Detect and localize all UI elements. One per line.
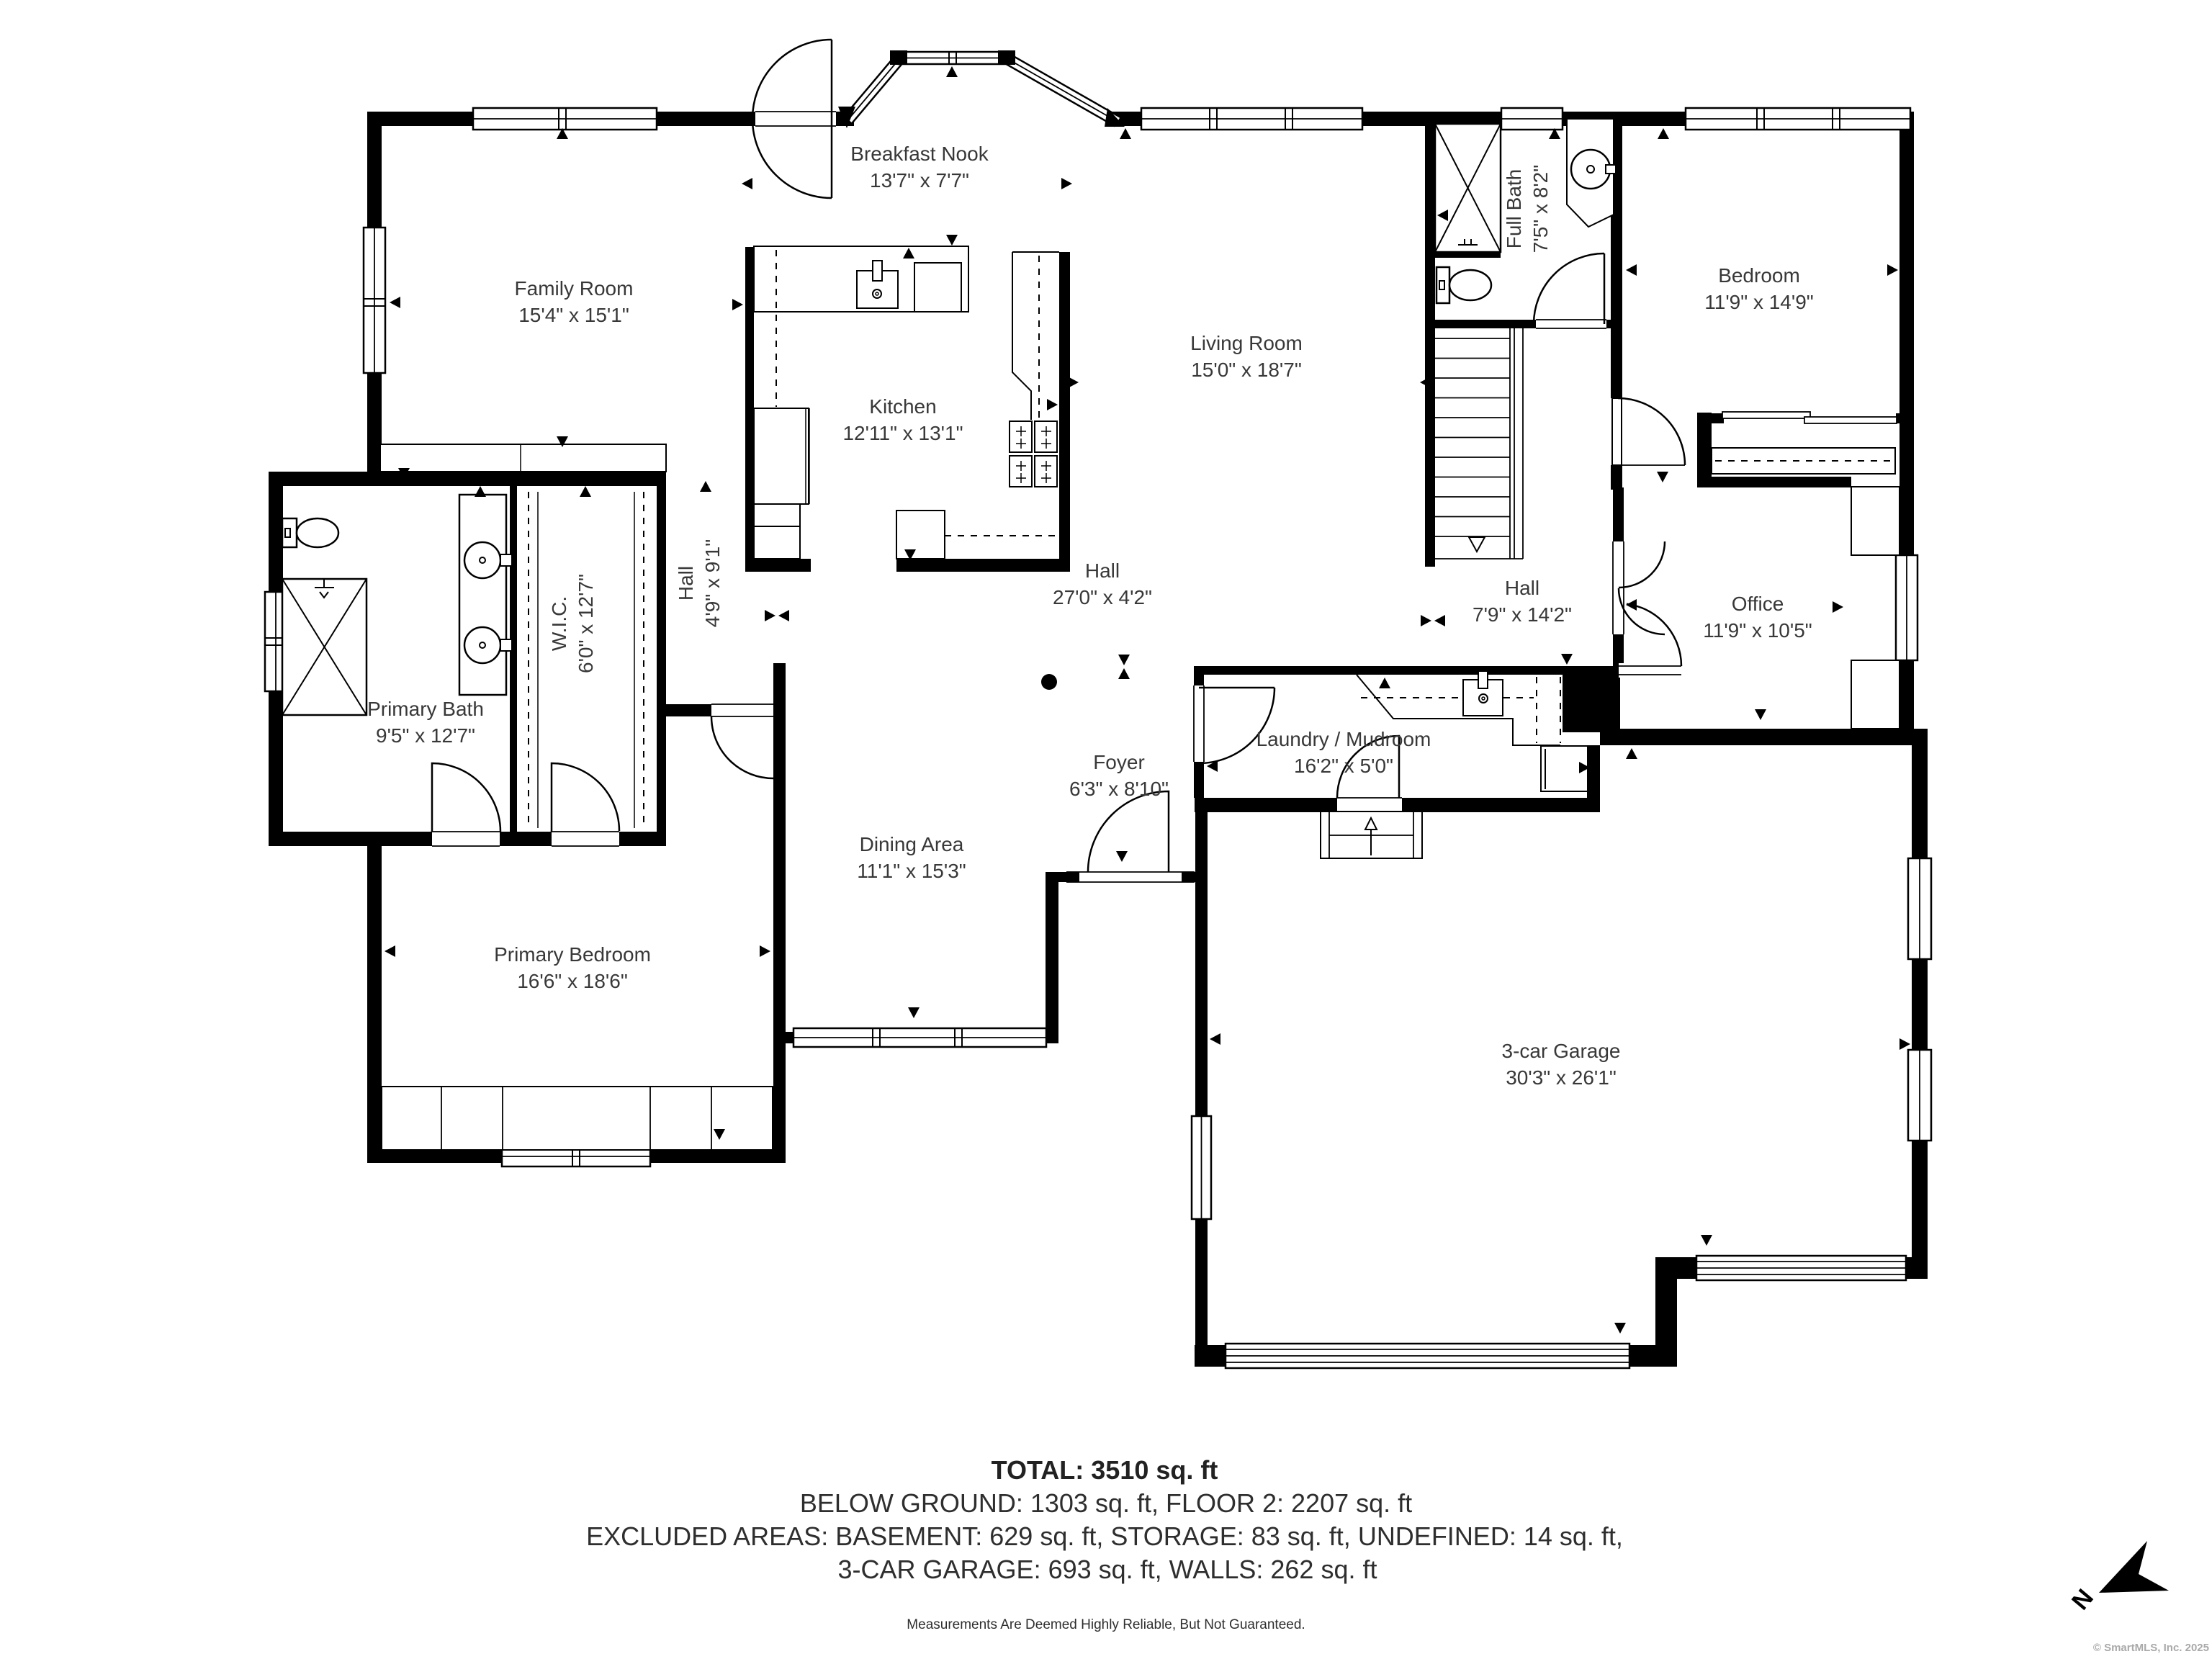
svg-text:Office: Office (1732, 593, 1784, 615)
svg-text:11'9" x 10'5": 11'9" x 10'5" (1703, 619, 1812, 642)
svg-text:13'7" x 7'7": 13'7" x 7'7" (870, 169, 969, 192)
svg-text:30'3" x 26'1": 30'3" x 26'1" (1506, 1066, 1617, 1089)
svg-text:4'9" x 9'1": 4'9" x 9'1" (701, 539, 724, 627)
svg-text:Primary Bedroom: Primary Bedroom (494, 943, 651, 966)
svg-text:15'4" x 15'1": 15'4" x 15'1" (518, 304, 629, 326)
svg-text:Family Room: Family Room (515, 277, 634, 300)
svg-text:3-car Garage: 3-car Garage (1502, 1040, 1621, 1062)
svg-text:16'6" x 18'6": 16'6" x 18'6" (517, 970, 628, 992)
svg-text:TOTAL: 3510 sq. ft: TOTAL: 3510 sq. ft (992, 1455, 1218, 1485)
svg-text:© SmartMLS, Inc. 2025: © SmartMLS, Inc. 2025 (2093, 1642, 2209, 1654)
svg-text:15'0" x 18'7": 15'0" x 18'7" (1191, 359, 1302, 381)
svg-text:Kitchen: Kitchen (869, 395, 936, 418)
svg-text:11'9" x 14'9": 11'9" x 14'9" (1704, 291, 1813, 313)
svg-text:Laundry / Mudroom: Laundry / Mudroom (1256, 728, 1431, 750)
svg-text:EXCLUDED AREAS: BASEMENT: 629: EXCLUDED AREAS: BASEMENT: 629 sq. ft, ST… (586, 1521, 1623, 1551)
svg-text:Measurements Are Deemed Highly: Measurements Are Deemed Highly Reliable,… (907, 1617, 1305, 1632)
svg-text:11'1" x 15'3": 11'1" x 15'3" (857, 860, 966, 882)
svg-text:W.I.C.: W.I.C. (548, 596, 570, 651)
svg-text:Full Bath: Full Bath (1503, 169, 1525, 249)
svg-text:9'5" x 12'7": 9'5" x 12'7" (376, 724, 475, 747)
svg-text:7'5" x 8'2": 7'5" x 8'2" (1529, 165, 1552, 253)
svg-text:Breakfast Nook: Breakfast Nook (850, 143, 989, 165)
svg-text:6'3" x 8'10": 6'3" x 8'10" (1069, 778, 1169, 800)
svg-text:Primary Bath: Primary Bath (367, 698, 484, 720)
svg-text:Living Room: Living Room (1190, 332, 1303, 354)
svg-text:12'11" x 13'1": 12'11" x 13'1" (842, 422, 963, 444)
svg-text:7'9" x 14'2": 7'9" x 14'2" (1473, 603, 1572, 626)
svg-text:Bedroom: Bedroom (1718, 264, 1800, 287)
svg-text:16'2" x 5'0": 16'2" x 5'0" (1294, 755, 1393, 777)
svg-text:Foyer: Foyer (1093, 751, 1145, 773)
svg-text:Dining Area: Dining Area (860, 833, 964, 855)
svg-text:6'0" x 12'7": 6'0" x 12'7" (575, 574, 597, 673)
svg-text:BELOW GROUND: 1303 sq. ft, FLO: BELOW GROUND: 1303 sq. ft, FLOOR 2: 2207… (800, 1488, 1412, 1518)
svg-text:27'0" x 4'2": 27'0" x 4'2" (1053, 586, 1152, 608)
svg-text:3-CAR GARAGE: 693 sq. ft, WALL: 3-CAR GARAGE: 693 sq. ft, WALLS: 262 sq.… (838, 1555, 1377, 1584)
svg-text:Hall: Hall (1085, 559, 1120, 582)
svg-text:Hall: Hall (675, 566, 697, 601)
svg-text:Hall: Hall (1505, 577, 1539, 599)
